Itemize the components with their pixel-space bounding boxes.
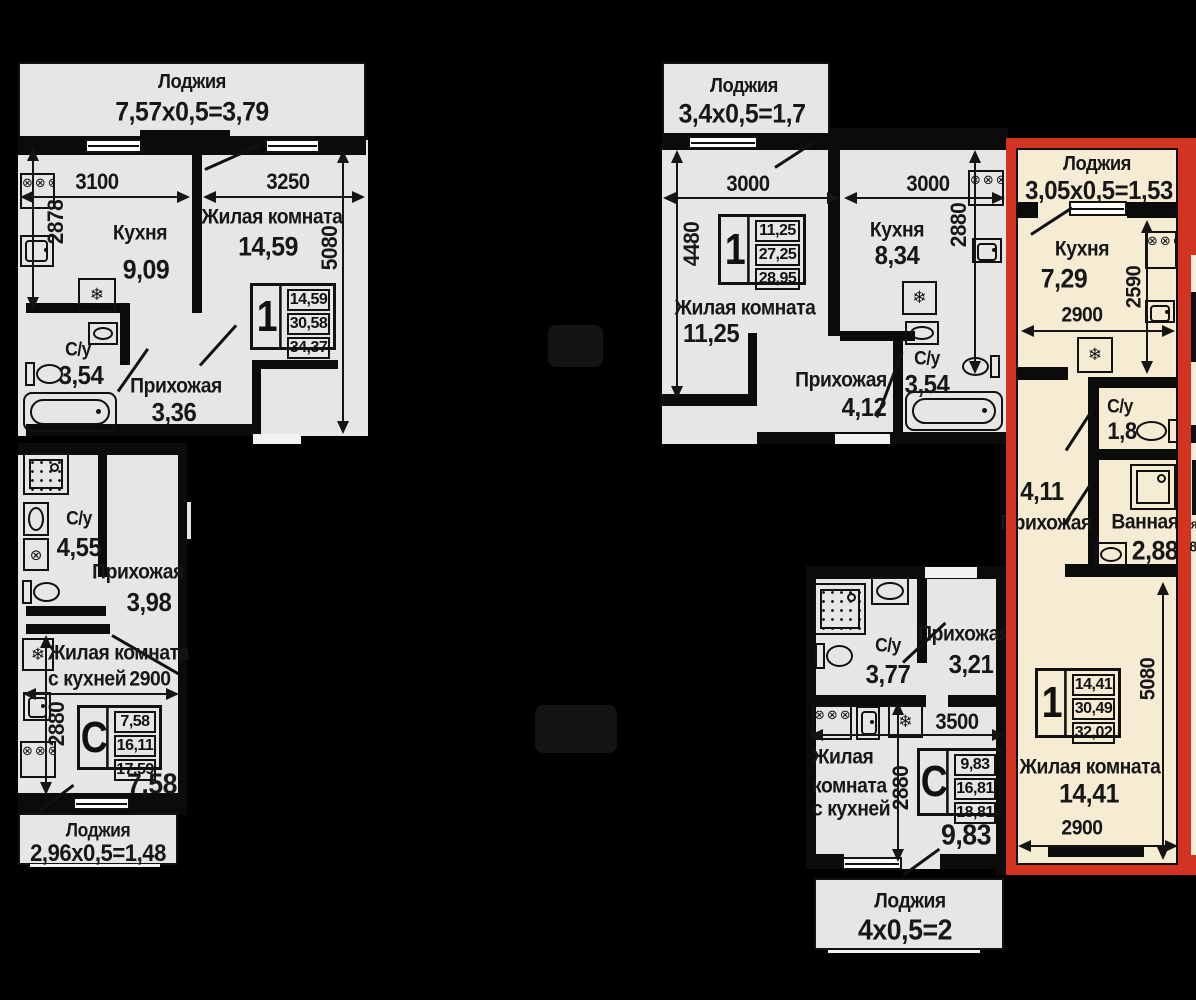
room-label-living: Жилая комната [48, 643, 189, 664]
window [73, 797, 130, 810]
loggia-calc: 4х0,5=2 [858, 917, 952, 946]
room-area: 14,59 [238, 234, 298, 261]
room-area: 1,8 [1107, 420, 1136, 444]
adjacent-icon-fragment [1191, 292, 1196, 362]
wall [840, 331, 915, 341]
room-label-wc: С/у [65, 341, 91, 360]
dim-label: 2900 [1061, 818, 1102, 839]
dimension-arrow [665, 197, 838, 199]
unit-card-area: 14,59 [287, 289, 330, 311]
room-label-living: комната [812, 776, 887, 797]
shower-icon [814, 583, 866, 635]
adjacent-icon-fragment [1192, 460, 1196, 515]
room-area: 7,58 [127, 771, 177, 800]
unit-card-area: 16,81 [954, 778, 996, 800]
room-label-living: Жилая комната [202, 207, 343, 228]
room-label-wc: С/у [875, 637, 901, 656]
room-area: 4,55 [57, 534, 102, 560]
wall [140, 130, 230, 155]
room-label-wc: С/у [914, 350, 940, 369]
wall [192, 155, 202, 313]
toilet-icon [22, 580, 60, 604]
wall [252, 360, 338, 369]
unit-card-area: 34,37 [287, 337, 330, 359]
bathroom-sink-icon [88, 322, 118, 345]
unit-card-area: 28,95 [755, 268, 800, 290]
dimension-arrow [812, 734, 1003, 736]
unit-type: С [82, 708, 108, 767]
unit-card-area: 30,58 [287, 313, 330, 335]
dim-label: 3500 [935, 711, 978, 733]
room-label-kitchen: Кухня [113, 223, 167, 244]
wall [996, 566, 1006, 875]
fridge-icon: ❄ [78, 278, 116, 312]
wall [26, 624, 110, 634]
unit-type: 1 [1040, 671, 1066, 735]
loggia-label: Лоджия [1063, 154, 1131, 174]
shower-icon [1130, 464, 1176, 510]
room-label-wc: С/у [1107, 398, 1133, 417]
wall [948, 695, 1006, 707]
loggia-label: Лоджия [874, 891, 945, 912]
entrance-door [925, 567, 977, 578]
room-area: 3,54 [59, 362, 104, 388]
room-area: 7,29 [1041, 266, 1088, 293]
stove-icon: ⊗⊗⊗⊗ [20, 741, 56, 778]
dimension-arrow [1023, 330, 1173, 332]
bathroom-sink-icon [905, 321, 939, 345]
unit-card: С 7,58 16,11 17,59 [77, 705, 162, 770]
wall [120, 313, 130, 365]
room-area: 3,77 [866, 661, 911, 687]
wall [828, 150, 840, 336]
entrance-door [253, 434, 301, 444]
entrance-door [835, 434, 890, 444]
washing-machine-icon: ⊗ [23, 538, 49, 571]
dim-label: 2878 [45, 200, 67, 245]
dimension-arrow [1162, 584, 1164, 858]
room-label-kitchen: Кухня [870, 220, 924, 241]
room-area: 9,83 [941, 822, 991, 851]
loggia-label: Лоджия [710, 76, 778, 96]
room-label-hall: Прихожая [92, 562, 184, 583]
wall [178, 443, 187, 815]
unit-card-area: 9,83 [954, 754, 996, 776]
room-area: 14,41 [1059, 781, 1119, 808]
bathroom-sink-icon [871, 577, 909, 605]
room-label-living: Жилая комната [675, 298, 816, 319]
unit-type: С [922, 751, 948, 813]
dim-label: 2900 [1061, 305, 1102, 326]
wall [26, 606, 106, 616]
dimension-arrow [1020, 845, 1176, 847]
loggia-sill [828, 950, 980, 953]
room-label-living: Жилая [812, 747, 873, 768]
dim-label: 3000 [726, 173, 769, 195]
shower-icon [23, 453, 69, 495]
unit-card: 1 11,25 27,25 28,95 [718, 214, 806, 285]
fridge-icon: ❄ [902, 281, 937, 315]
dim-label: 2590 [1124, 266, 1145, 308]
room-label-wc: С/у [66, 510, 92, 529]
unit-card-area: 16,11 [114, 735, 156, 757]
wall [806, 854, 844, 869]
dim-label: 2880 [948, 203, 970, 248]
unit-type: 1 [723, 217, 749, 282]
room-area: 4,12 [842, 394, 887, 420]
dimension-arrow [342, 152, 344, 432]
room-area: 11,25 [683, 320, 739, 346]
adjacent-text-fragment: 8 [1189, 540, 1196, 555]
wall [830, 128, 1008, 150]
toilet-icon [815, 643, 853, 669]
unit-card-area: 32,02 [1072, 722, 1115, 744]
wall [917, 579, 927, 663]
bathtub-icon [23, 392, 117, 432]
room-label-hall: Прихожая [918, 624, 1010, 645]
window [265, 139, 320, 153]
window [688, 136, 758, 149]
room-area: 3,36 [152, 399, 197, 425]
unit-card-area: 30,49 [1072, 698, 1115, 720]
room-area: 3,21 [949, 651, 994, 677]
loggia-label: Лоджия [158, 72, 226, 92]
wall [1088, 449, 1180, 460]
loggia-calc: 3,4х0,5=1,7 [679, 101, 806, 128]
dim-label: 2880 [46, 702, 68, 747]
room-label-living: с кухней [812, 799, 890, 820]
dim-label: 3100 [75, 171, 118, 193]
toilet-icon [1136, 419, 1178, 443]
dimension-arrow [1146, 222, 1148, 372]
toilet-icon [25, 362, 63, 386]
room-label-hall: Прихожая [1000, 513, 1092, 534]
kitchen-sink-icon [972, 238, 1002, 263]
loggia-calc: 2,96х0,5=1,48 [30, 842, 166, 866]
wall [748, 333, 757, 403]
loggia-label: Лоджия [66, 822, 130, 841]
unit-type: 1 [255, 286, 281, 347]
room-label-kitchen: Кухня [1055, 239, 1109, 260]
window [85, 139, 142, 153]
unit-card: 1 14,59 30,58 34,37 [250, 283, 336, 350]
stove-icon: ⊗⊗⊗⊗ [1145, 231, 1177, 269]
room-area: 3,54 [905, 371, 950, 397]
faint-core-mark [535, 705, 617, 753]
room-label-hall: Прихожая [130, 376, 222, 397]
unit-card-area: 7,58 [114, 711, 156, 733]
dim-label: 2900 [129, 669, 170, 690]
room-label-bath: Ванная [1111, 512, 1178, 533]
unit-card-area: 11,25 [755, 220, 800, 242]
loggia-calc: 7,57х0,5=3,79 [115, 99, 269, 126]
room-label-hall: Прихожая [795, 370, 887, 391]
wall [1090, 377, 1178, 388]
room-label-living: с кухней [48, 669, 126, 690]
dim-label: 5080 [319, 226, 341, 271]
dimension-arrow [846, 197, 1003, 199]
adjacent-icon-fragment [1191, 425, 1196, 443]
unit-card-area: 27,25 [755, 244, 800, 266]
room-area: 4,11 [1020, 478, 1063, 504]
dimension-arrow [974, 152, 976, 372]
dimension-arrow [32, 150, 34, 308]
kitchen-sink-icon [1145, 300, 1175, 323]
fridge-icon: ❄ [1077, 337, 1113, 373]
room-area: 8,34 [875, 242, 920, 268]
dimension-arrow [25, 693, 177, 695]
room-label-living: Жилая комната [1020, 757, 1161, 778]
faint-core-mark [548, 325, 603, 367]
room-area: 3,98 [127, 589, 172, 615]
dimension-arrow [205, 196, 363, 198]
dim-label: 3250 [266, 171, 309, 193]
bathroom-sink-icon [1095, 542, 1127, 567]
dim-label: 3000 [906, 173, 949, 195]
wall [1018, 367, 1068, 380]
adjacent-text-fragment: я [1191, 518, 1196, 531]
dim-label: 4480 [681, 222, 703, 267]
unit-card: С 9,83 16,81 18,81 [917, 748, 1002, 816]
dim-label: 5080 [1138, 658, 1159, 700]
dimension-arrow [22, 196, 188, 198]
dimension-arrow [676, 152, 678, 397]
toilet-icon [962, 355, 1000, 378]
unit-card: 1 14,41 30,49 32,02 [1035, 668, 1121, 738]
loggia-calc: 3,05х0,5=1,53 [1025, 177, 1173, 203]
room-area: 2,88 [1132, 538, 1179, 565]
dim-label: 2880 [890, 766, 912, 811]
wall [940, 854, 1006, 869]
bathroom-sink-icon [23, 502, 49, 536]
room-area: 9,09 [123, 257, 170, 284]
unit-card-area: 14,41 [1072, 674, 1115, 696]
floor-plan: ⊗⊗⊗⊗ ❄ Лоджия 7,57х0,5=3,79 3100 3250 28… [0, 0, 1196, 1000]
